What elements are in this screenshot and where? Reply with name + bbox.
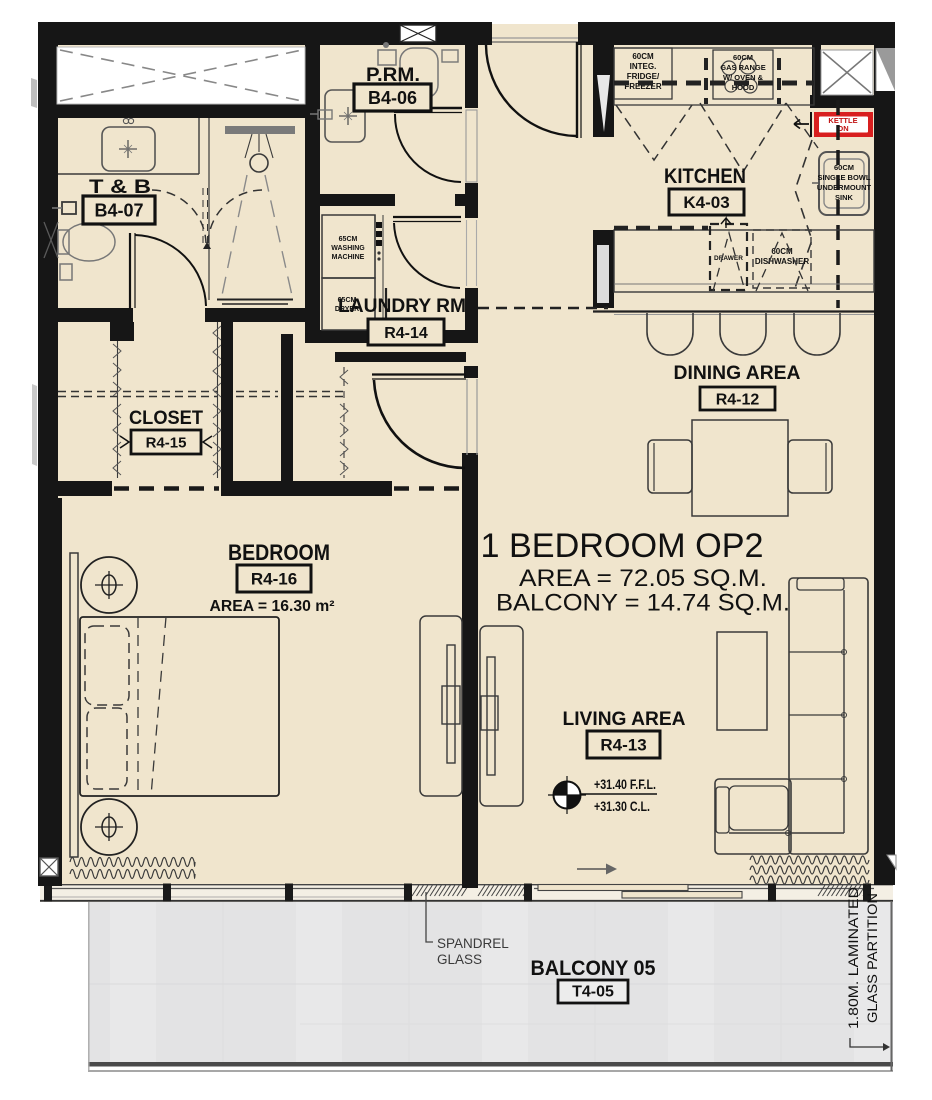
svg-text:SPANDREL: SPANDREL	[437, 936, 509, 951]
svg-text:60CM: 60CM	[733, 53, 753, 62]
svg-text:FRIDGE/: FRIDGE/	[627, 72, 660, 81]
svg-text:BALCONY 05: BALCONY 05	[531, 957, 656, 980]
svg-text:R4-12: R4-12	[716, 391, 760, 408]
svg-text:K4-03: K4-03	[683, 193, 729, 212]
svg-text:AREA = 72.05 SQ.M.: AREA = 72.05 SQ.M.	[519, 565, 767, 592]
svg-text:WASHING: WASHING	[331, 245, 365, 252]
svg-text:LIVING AREA: LIVING AREA	[563, 709, 686, 730]
svg-text:UNDERMOUNT: UNDERMOUNT	[817, 183, 872, 192]
svg-text:BALCONY = 14.74 SQ.M.: BALCONY = 14.74 SQ.M.	[496, 590, 790, 617]
svg-text:KITCHEN: KITCHEN	[664, 165, 746, 188]
svg-text:INTEG.: INTEG.	[630, 62, 657, 71]
svg-text:R4-14: R4-14	[384, 325, 428, 342]
svg-text:R4-15: R4-15	[146, 434, 187, 451]
svg-text:SINGLE BOWL: SINGLE BOWL	[818, 173, 871, 182]
svg-text:GLASS PARTITION: GLASS PARTITION	[864, 893, 880, 1023]
svg-text:1 BEDROOM OP2: 1 BEDROOM OP2	[481, 527, 764, 565]
svg-text:GLASS: GLASS	[437, 952, 482, 967]
svg-text:1.80M. LAMINATED: 1.80M. LAMINATED	[845, 887, 861, 1029]
svg-text:B4-07: B4-07	[94, 200, 143, 220]
svg-text:R4-16: R4-16	[251, 570, 297, 589]
svg-text:AREA = 16.30 m²: AREA = 16.30 m²	[210, 598, 335, 615]
svg-text:T4-05: T4-05	[572, 984, 614, 1001]
svg-text:+31.40 F.F.L.: +31.40 F.F.L.	[594, 777, 656, 792]
svg-text:DISHWASHER: DISHWASHER	[755, 257, 809, 266]
svg-text:LAUNDRY RM: LAUNDRY RM	[338, 296, 466, 317]
svg-text:B4-06: B4-06	[368, 88, 417, 108]
svg-text:65CM: 65CM	[339, 236, 358, 243]
svg-text:MACHINE: MACHINE	[332, 254, 365, 261]
svg-text:DINING AREA: DINING AREA	[674, 363, 801, 384]
svg-text:GAS RANGE: GAS RANGE	[720, 63, 765, 72]
svg-text:CLOSET: CLOSET	[129, 408, 203, 429]
svg-text:BEDROOM: BEDROOM	[228, 540, 330, 565]
svg-text:+31.30 C.L.: +31.30 C.L.	[594, 799, 650, 814]
svg-text:R4-13: R4-13	[600, 736, 646, 755]
svg-text:DRAWER: DRAWER	[714, 255, 743, 262]
svg-text:60CM: 60CM	[632, 52, 654, 61]
